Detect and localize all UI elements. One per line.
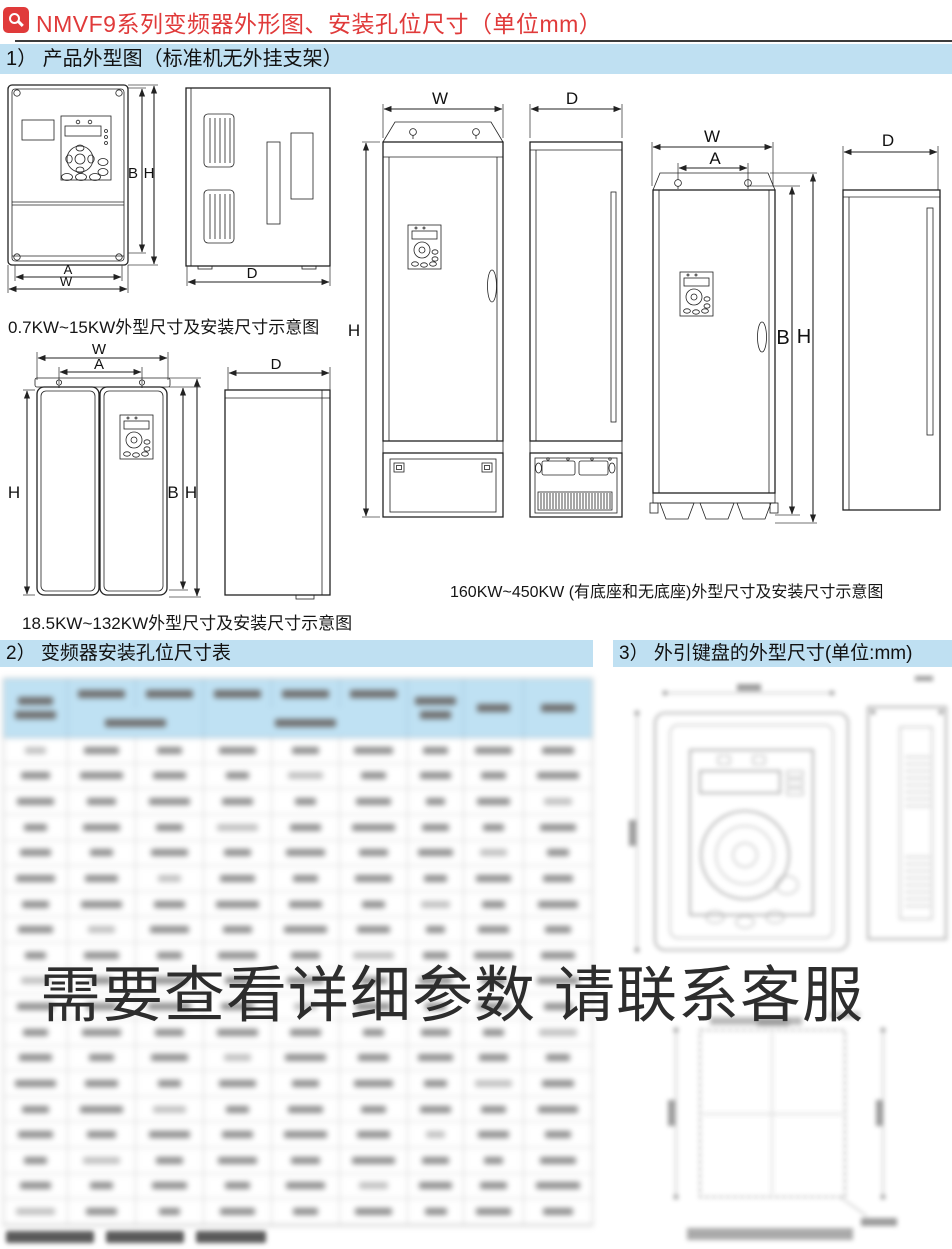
table-row <box>4 789 592 815</box>
table-row <box>4 1097 592 1123</box>
dim-label-h: H <box>348 321 360 340</box>
caption-medium-range: 18.5KW~132KW外型尺寸及安装尺寸示意图 <box>22 609 352 634</box>
table-row <box>4 866 592 892</box>
dim-label-h: H <box>8 483 20 502</box>
spec-sheet-page: NMVF9系列变频器外形图、安装孔位尺寸（单位mm） 1） 产品外型图（标准机无… <box>0 0 952 1249</box>
dim-label-h: H <box>144 165 155 182</box>
table-row <box>4 1046 592 1072</box>
page-title: NMVF9系列变频器外形图、安装孔位尺寸（单位mm） <box>36 5 602 39</box>
caption-small-range: 0.7KW~15KW外型尺寸及安装尺寸示意图 <box>8 313 319 338</box>
dim-label-b: B <box>776 327 789 349</box>
dim-label-d: D <box>271 356 282 373</box>
dim-label-a: A <box>94 356 104 373</box>
small-inverter-front-view: B H A W <box>8 85 158 293</box>
table-footnote-blurred <box>6 1231 278 1245</box>
small-inverter-side-view: D <box>186 88 330 286</box>
magnifier-icon <box>3 7 29 33</box>
table-row <box>4 1174 592 1200</box>
table-header <box>4 679 592 738</box>
table-row <box>4 1199 592 1225</box>
dim-label-d: D <box>566 89 578 108</box>
section-1-header: 1） 产品外型图（标准机无外挂支架） <box>0 44 952 74</box>
large-inverter-side-view: D <box>843 131 940 510</box>
large-inverter-base-front-view: W H <box>348 89 503 517</box>
dim-label-h: H <box>797 326 811 348</box>
dim-label-w: W <box>432 89 448 108</box>
watermark-text: 需要查看详细参数 请联系客服 <box>40 945 864 1034</box>
dim-label-d: D <box>882 131 894 150</box>
outline-drawings: B H A W D <box>0 78 952 638</box>
table-row <box>4 1122 592 1148</box>
table-row <box>4 841 592 867</box>
dim-label-a: A <box>709 149 721 168</box>
medium-inverter-front-view: W A H B H <box>8 341 201 597</box>
dim-label-w: W <box>60 274 73 289</box>
table-row <box>4 892 592 918</box>
large-inverter-base-side-view: D <box>530 89 622 517</box>
dim-label-b: B <box>128 165 138 182</box>
table-row <box>4 1148 592 1174</box>
dim-label-h: H <box>185 483 197 502</box>
dim-label-w: W <box>704 127 720 146</box>
table-row <box>4 1071 592 1097</box>
table-row <box>4 764 592 790</box>
header-divider <box>15 40 952 42</box>
table-row <box>4 738 592 764</box>
large-inverter-front-view: W A B H <box>650 127 817 523</box>
medium-inverter-side-view: D <box>225 356 330 599</box>
section-3-header: 3） 外引键盘的外型尺寸(单位:mm) <box>613 640 952 667</box>
table-header-model <box>4 679 68 737</box>
dim-label-d: D <box>247 265 258 282</box>
dim-label-b: B <box>167 483 178 502</box>
table-row <box>4 815 592 841</box>
section-2-header: 2） 变频器安装孔位尺寸表 <box>0 640 593 667</box>
table-row <box>4 917 592 943</box>
caption-large-range: 160KW~450KW (有底座和无底座)外型尺寸及安装尺寸示意图 <box>450 578 883 602</box>
